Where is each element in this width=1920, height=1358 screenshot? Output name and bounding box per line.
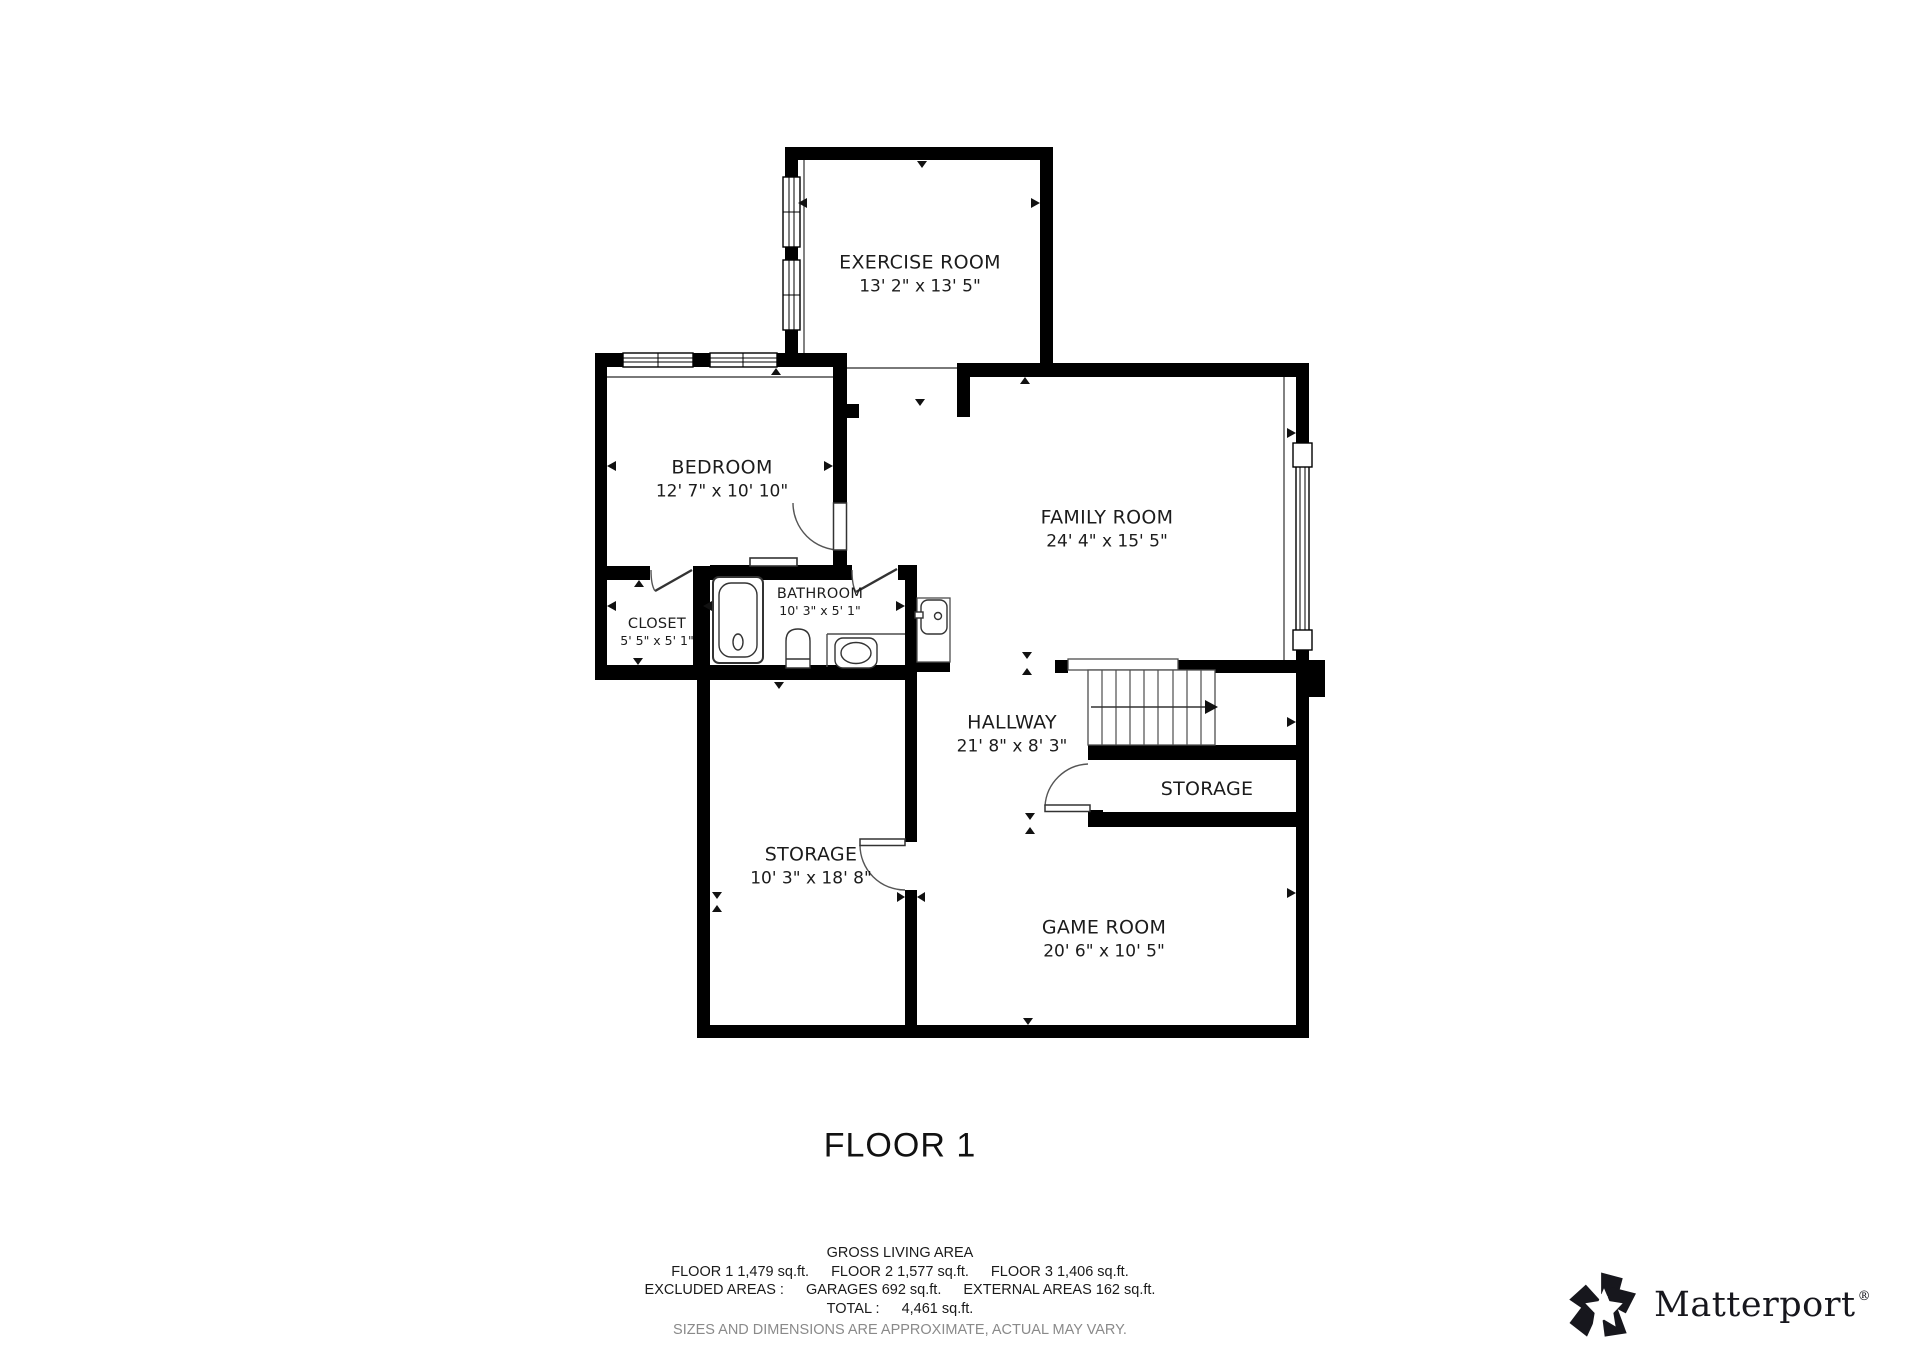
external-area: EXTERNAL AREAS 162 sq.ft. (963, 1281, 1155, 1300)
window-icon (623, 353, 693, 367)
total-value: 4,461 sq.ft. (902, 1300, 974, 1319)
registered-trademark: ® (1858, 1289, 1872, 1304)
window-icon (1293, 443, 1312, 650)
room-name: CLOSET (620, 616, 693, 632)
matterport-wordmark: Matterport ® (1654, 1285, 1871, 1325)
room-name: BEDROOM (656, 457, 788, 479)
floor-plan-page: EXERCISE ROOM 13' 2" x 13' 5" BEDROOM 12… (0, 0, 1920, 1358)
room-dimensions: 24' 4" x 15' 5" (1041, 532, 1174, 552)
room-dimensions: 10' 3" x 18' 8" (750, 869, 872, 889)
room-name: BATHROOM (777, 586, 863, 602)
stair-rail (1068, 659, 1178, 670)
door-icon (793, 503, 847, 550)
room-label-bathroom: BATHROOM 10' 3" x 5' 1" (777, 586, 863, 618)
shower-icon (835, 638, 877, 668)
room-name: GAME ROOM (1042, 917, 1166, 939)
excluded-areas-label: EXCLUDED AREAS : (645, 1281, 784, 1300)
toilet-icon (786, 629, 810, 668)
excluded-areas-line: EXCLUDED AREAS : GARAGES 692 sq.ft. EXTE… (645, 1281, 1156, 1300)
room-label-hallway: HALLWAY 21' 8" x 8' 3" (957, 712, 1068, 757)
floor-3-area: FLOOR 3 1,406 sq.ft. (991, 1263, 1129, 1282)
room-name: STORAGE (750, 844, 872, 866)
room-dimensions: 12' 7" x 10' 10" (656, 482, 788, 502)
floor-areas-line: FLOOR 1 1,479 sq.ft. FLOOR 2 1,577 sq.ft… (645, 1263, 1156, 1282)
room-label-bedroom: BEDROOM 12' 7" x 10' 10" (656, 457, 788, 502)
room-dimensions: 20' 6" x 10' 5" (1042, 942, 1166, 962)
disclaimer-text: SIZES AND DIMENSIONS ARE APPROXIMATE, AC… (645, 1321, 1156, 1340)
floor-2-area: FLOOR 2 1,577 sq.ft. (831, 1263, 969, 1282)
window-icon (783, 177, 800, 247)
room-label-family-room: FAMILY ROOM 24' 4" x 15' 5" (1041, 507, 1174, 552)
room-label-storage: STORAGE 10' 3" x 18' 8" (750, 844, 872, 889)
room-name: FAMILY ROOM (1041, 507, 1174, 529)
gross-living-area-title: GROSS LIVING AREA (645, 1244, 1156, 1263)
garages-area: GARAGES 692 sq.ft. (806, 1281, 941, 1300)
room-label-exercise-room: EXERCISE ROOM 13' 2" x 13' 5" (839, 252, 1001, 297)
matterport-logo: Matterport ® (1568, 1270, 1871, 1340)
room-name: HALLWAY (957, 712, 1068, 734)
floor-1-area: FLOOR 1 1,479 sq.ft. (671, 1263, 809, 1282)
bathtub-icon (713, 577, 763, 663)
total-label: TOTAL : (827, 1300, 880, 1319)
room-name: EXERCISE ROOM (839, 252, 1001, 274)
window-icon (783, 260, 800, 330)
room-dimensions: 13' 2" x 13' 5" (839, 277, 1001, 297)
room-dimensions: 21' 8" x 8' 3" (957, 737, 1068, 757)
floor-title: FLOOR 1 (824, 1127, 976, 1166)
doors (651, 503, 1090, 890)
summary-title: GROSS LIVING AREA (827, 1244, 974, 1263)
bedroom-shelf (750, 558, 797, 566)
total-area-line: TOTAL : 4,461 sq.ft. (645, 1300, 1156, 1319)
staircase (1068, 659, 1218, 745)
room-label-storage-under-stairs: STORAGE (1161, 778, 1254, 800)
door-icon (1045, 764, 1090, 812)
room-dimensions: 5' 5" x 5' 1" (620, 633, 693, 648)
door-icon (651, 570, 692, 591)
room-label-game-room: GAME ROOM 20' 6" x 10' 5" (1042, 917, 1166, 962)
room-dimensions: 10' 3" x 5' 1" (777, 603, 863, 618)
window-icon (710, 353, 777, 367)
area-summary: GROSS LIVING AREA FLOOR 1 1,479 sq.ft. F… (645, 1244, 1156, 1340)
room-name: STORAGE (1161, 778, 1254, 800)
room-label-closet: CLOSET 5' 5" x 5' 1" (620, 616, 693, 648)
